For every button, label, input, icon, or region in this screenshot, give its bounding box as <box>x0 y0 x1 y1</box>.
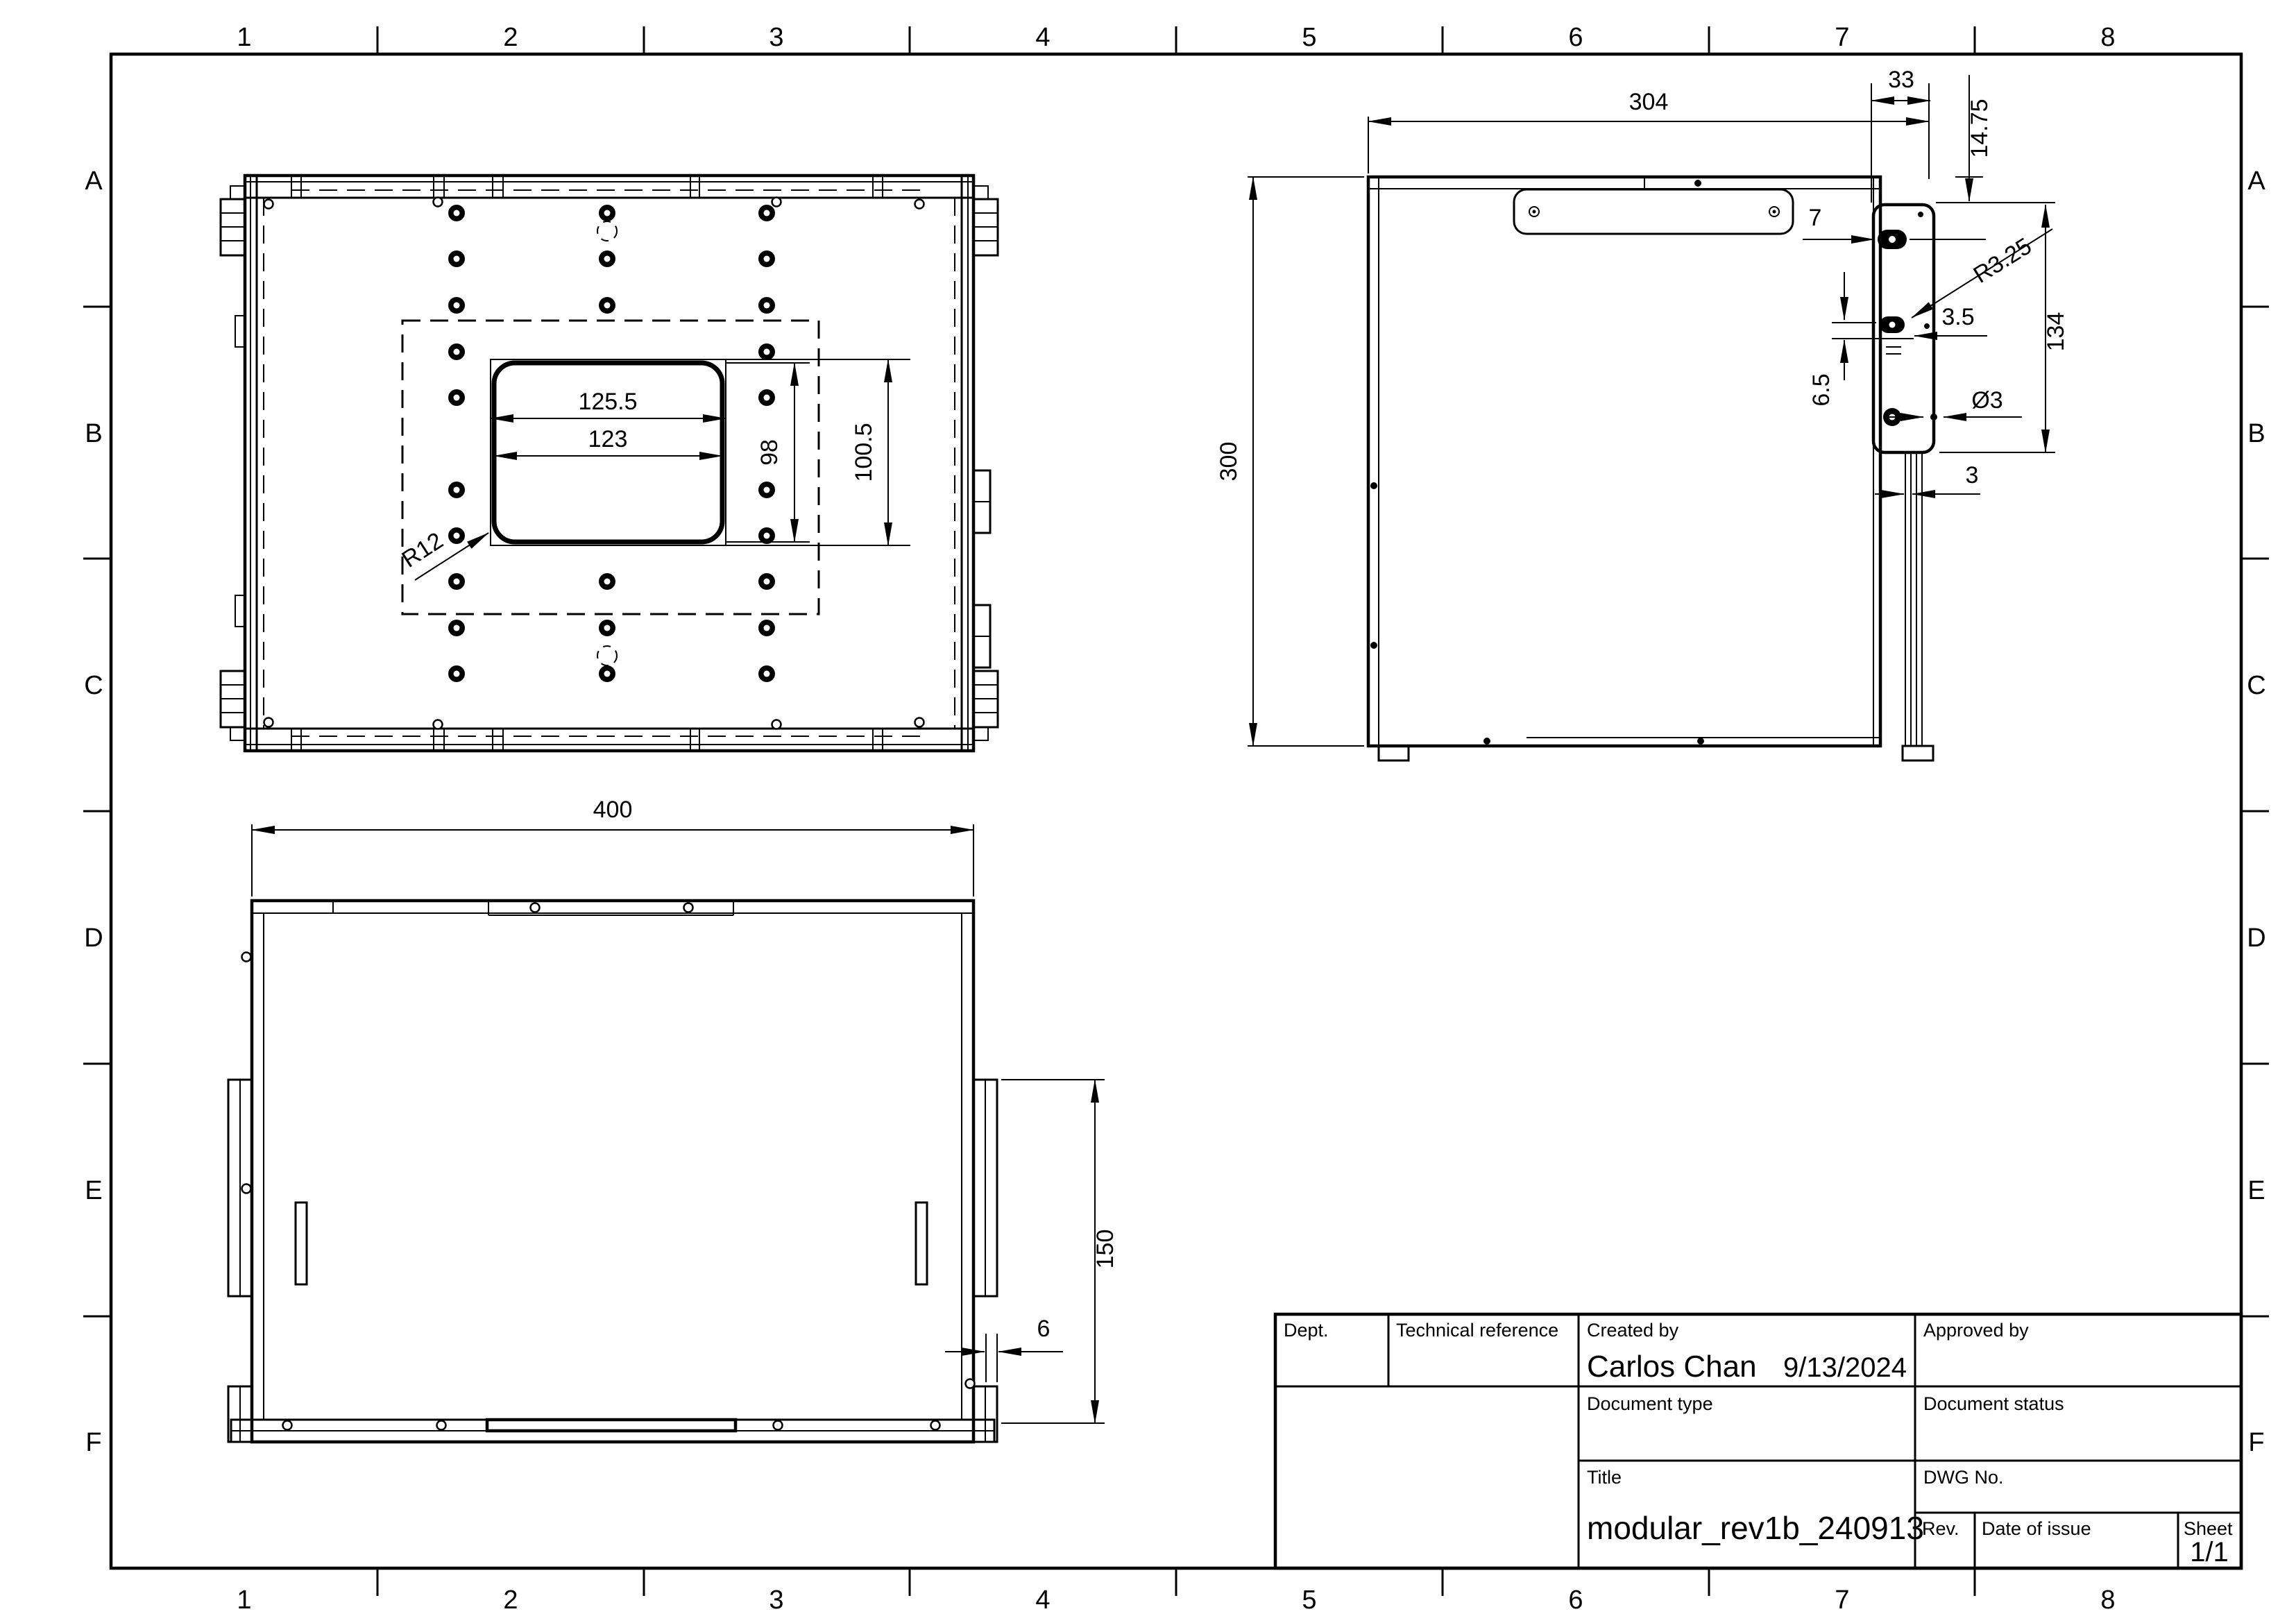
document-type-label: Document type <box>1587 1393 1713 1414</box>
dim-hole-diameter: Ø3 <box>1971 387 2002 414</box>
left-flange <box>228 1080 252 1442</box>
row-label-left: C <box>84 671 103 700</box>
side-view: 304 300 33 14.75 7 R3.25 3.5 6.5 Ø3 <box>1216 67 2069 760</box>
col-label-bottom: 1 <box>237 1586 251 1615</box>
row-label-left: A <box>85 167 103 196</box>
dim-slot-offset: 7 <box>1809 205 1822 231</box>
sheet-value: 1/1 <box>2190 1537 2229 1567</box>
created-date-value: 9/13/2024 <box>1783 1352 1907 1383</box>
foot-right <box>1903 746 1933 760</box>
dept-label: Dept. <box>1284 1320 1329 1341</box>
col-label-bottom: 2 <box>503 1586 518 1615</box>
technical-reference-label: Technical reference <box>1396 1320 1558 1341</box>
side-view-dimensions: 304 300 33 14.75 7 R3.25 3.5 6.5 Ø3 <box>1216 67 2069 746</box>
dim-cutout-width-inner: 123 <box>588 426 628 452</box>
border-grid-labels: 1 2 3 4 5 6 7 8 1 2 3 4 5 6 7 8 A B C D … <box>84 23 2265 1615</box>
row-label-left: D <box>84 924 103 953</box>
slot-right <box>916 1203 927 1284</box>
col-label-top: 8 <box>2100 23 2115 52</box>
foot-left <box>1379 746 1409 760</box>
dim-overall-width: 304 <box>1629 89 1669 115</box>
row-label-right: E <box>2247 1176 2265 1205</box>
title-block: Dept. Technical reference Created by Car… <box>1275 1314 2241 1568</box>
front-view: 400 150 6 <box>228 797 1119 1442</box>
dwg-no-label: DWG No. <box>1923 1467 2004 1488</box>
date-of-issue-label: Date of issue <box>1982 1518 2091 1539</box>
col-label-top: 4 <box>1035 23 1050 52</box>
col-label-bottom: 6 <box>1568 1586 1583 1615</box>
col-label-bottom: 8 <box>2100 1586 2115 1615</box>
created-by-value: Carlos Chan <box>1587 1350 1757 1384</box>
hinge-blocks <box>221 186 998 740</box>
col-label-top: 7 <box>1835 23 1849 52</box>
dim-slot-radius: R3.25 <box>1969 233 2036 289</box>
dim-corner-radius: R12 <box>398 527 448 573</box>
dim-bracket-offset: 33 <box>1888 67 1914 93</box>
col-label-bottom: 5 <box>1302 1586 1316 1615</box>
rev-label: Rev. <box>1922 1518 1959 1539</box>
col-label-bottom: 3 <box>769 1586 783 1615</box>
col-label-top: 1 <box>237 23 251 52</box>
col-label-top: 5 <box>1302 23 1316 52</box>
top-view-dimensions: 125.5 123 98 100.5 R12 <box>398 359 910 580</box>
row-label-right: A <box>2247 167 2265 196</box>
row-label-right: C <box>2247 671 2265 700</box>
top-slot-plate <box>1514 189 1793 234</box>
row-label-left: E <box>85 1176 102 1205</box>
row-label-right: F <box>2248 1428 2264 1457</box>
mounting-hole-grid <box>264 198 924 729</box>
col-label-bottom: 4 <box>1035 1586 1050 1615</box>
dim-overall-width: 400 <box>593 797 633 823</box>
created-by-label: Created by <box>1587 1320 1679 1341</box>
right-flange <box>973 1080 997 1442</box>
title-label: Title <box>1587 1467 1622 1488</box>
dim-cutout-width-outer: 125.5 <box>578 389 637 415</box>
col-label-top: 2 <box>503 23 518 52</box>
title-value: modular_rev1b_240913 <box>1587 1510 1924 1546</box>
slot-left <box>296 1203 307 1284</box>
col-label-bottom: 7 <box>1835 1586 1849 1615</box>
dim-hole-offset: 3.5 <box>1941 304 1974 330</box>
col-label-top: 3 <box>769 23 783 52</box>
drawing-sheet: 1 2 3 4 5 6 7 8 1 2 3 4 5 6 7 8 A B C D … <box>0 0 2296 1623</box>
front-view-dimensions: 400 150 6 <box>252 797 1119 1423</box>
dim-corner-height-outer: 100.5 <box>851 423 877 482</box>
mounting-bracket <box>1873 205 1937 452</box>
dim-top-offset: 14.75 <box>1966 99 1993 158</box>
top-view: 125.5 123 98 100.5 R12 <box>221 176 998 751</box>
row-label-right: B <box>2247 419 2265 448</box>
document-status-label: Document status <box>1923 1393 2064 1414</box>
dim-flange-height: 150 <box>1092 1230 1119 1269</box>
dim-hole-pitch: 6.5 <box>1808 373 1835 406</box>
central-cutout <box>491 359 726 545</box>
row-label-left: B <box>85 419 102 448</box>
approved-by-label: Approved by <box>1923 1320 2029 1341</box>
dim-cutout-height-inner: 98 <box>756 439 783 466</box>
dim-wall-thickness: 3 <box>1966 462 1979 488</box>
cad-drawing-canvas: 1 2 3 4 5 6 7 8 1 2 3 4 5 6 7 8 A B C D … <box>0 0 2296 1623</box>
col-label-top: 6 <box>1568 23 1583 52</box>
base-plate <box>231 1420 994 1442</box>
sheet-label: Sheet <box>2184 1518 2233 1539</box>
dim-panel-thickness: 6 <box>1037 1316 1051 1342</box>
row-label-right: D <box>2247 924 2265 953</box>
dim-bracket-height: 134 <box>2043 312 2069 352</box>
sheet-frame <box>83 26 2269 1596</box>
dim-overall-height: 300 <box>1216 442 1242 482</box>
row-label-left: F <box>85 1428 101 1457</box>
